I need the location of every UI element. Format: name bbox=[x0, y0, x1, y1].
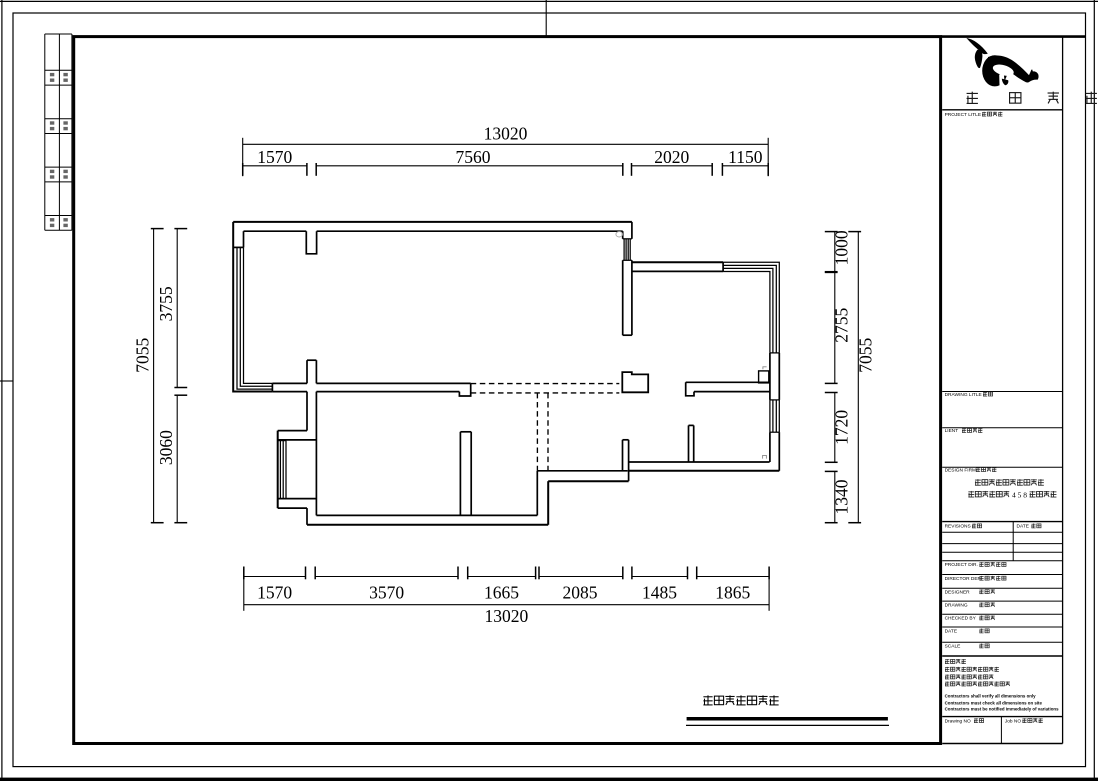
svg-text:DATE: DATE bbox=[1017, 524, 1029, 530]
svg-text:2085: 2085 bbox=[563, 582, 598, 602]
svg-text:DESIGN FIRM: DESIGN FIRM bbox=[945, 467, 976, 473]
svg-text:3060: 3060 bbox=[156, 430, 176, 465]
svg-text:7055: 7055 bbox=[133, 338, 153, 373]
svg-text:Contractors must be notified i: Contractors must be notified immediately… bbox=[945, 707, 1059, 712]
svg-text:7560: 7560 bbox=[456, 147, 491, 167]
svg-text:Contractors must check all dim: Contractors must check all dimensions on… bbox=[945, 701, 1043, 706]
svg-text:CHECKED BY: CHECKED BY bbox=[945, 616, 977, 622]
svg-text:DESIGNER: DESIGNER bbox=[945, 589, 971, 595]
svg-text:3755: 3755 bbox=[156, 286, 176, 321]
svg-text:4 5 8: 4 5 8 bbox=[1012, 490, 1027, 499]
svg-text:2755: 2755 bbox=[831, 307, 851, 342]
svg-text:1150: 1150 bbox=[728, 147, 763, 167]
svg-text:1665: 1665 bbox=[484, 582, 519, 602]
svg-text:2020: 2020 bbox=[654, 147, 689, 167]
svg-text:1485: 1485 bbox=[642, 582, 677, 602]
svg-text:DRAWING: DRAWING bbox=[945, 603, 968, 609]
svg-text:DRAWING LITLE: DRAWING LITLE bbox=[945, 392, 982, 398]
svg-text:DATE: DATE bbox=[945, 629, 957, 635]
svg-text:1340: 1340 bbox=[831, 479, 851, 514]
svg-text:1720: 1720 bbox=[831, 410, 851, 445]
svg-text:1865: 1865 bbox=[715, 582, 750, 602]
svg-text:13020: 13020 bbox=[485, 606, 529, 626]
svg-text:Job NO: Job NO bbox=[1005, 718, 1022, 724]
svg-text:PROJECT DIR.: PROJECT DIR. bbox=[945, 562, 978, 568]
svg-text:3570: 3570 bbox=[369, 582, 404, 602]
svg-text:SCALE: SCALE bbox=[945, 644, 961, 650]
svg-text:1000: 1000 bbox=[831, 230, 851, 265]
svg-text:1570: 1570 bbox=[257, 147, 292, 167]
svg-text:7055: 7055 bbox=[856, 338, 876, 373]
svg-text:REVISIONS: REVISIONS bbox=[945, 524, 971, 530]
svg-text:LIENT: LIENT bbox=[945, 428, 959, 434]
svg-text:Contractors shall verify all d: Contractors shall verify all dimensions … bbox=[945, 693, 1037, 698]
svg-text:PROJECT LITLE: PROJECT LITLE bbox=[945, 112, 981, 118]
svg-text:13020: 13020 bbox=[484, 124, 528, 144]
svg-text:Drawing NO: Drawing NO bbox=[945, 718, 971, 724]
svg-text:DIRECTOR DER: DIRECTOR DER bbox=[945, 576, 982, 582]
svg-text:1570: 1570 bbox=[257, 582, 292, 602]
